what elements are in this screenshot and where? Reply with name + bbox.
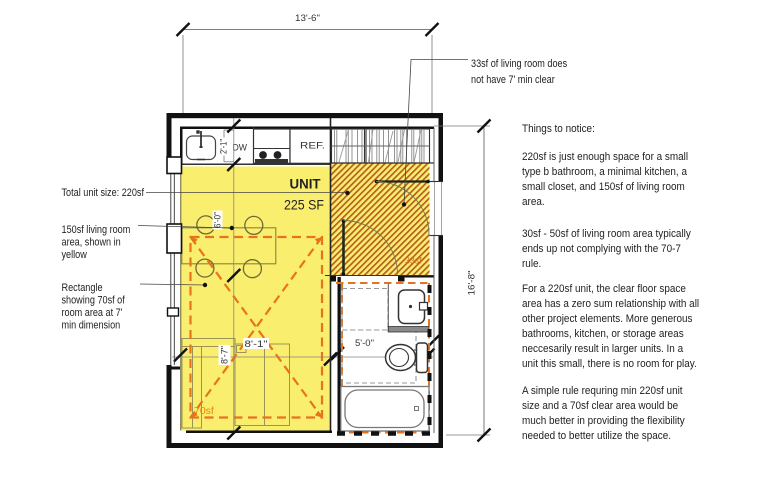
svg-text:area, shown in: area, shown in bbox=[62, 237, 121, 249]
svg-text:much better in providing the f: much better in providing the flexibility bbox=[522, 414, 685, 427]
svg-text:5'-0": 5'-0" bbox=[355, 338, 374, 349]
svg-text:UNIT: UNIT bbox=[290, 177, 322, 192]
svg-text:16'-8": 16'-8" bbox=[467, 271, 478, 296]
svg-text:min dimension: min dimension bbox=[62, 320, 121, 332]
svg-text:small closet, and 150sf of liv: small closet, and 150sf of living room bbox=[522, 180, 685, 193]
svg-text:neccesarily result in larger u: neccesarily result in larger units. In a bbox=[522, 342, 683, 355]
svg-text:DW: DW bbox=[233, 143, 248, 154]
svg-text:Things to notice:: Things to notice: bbox=[522, 122, 595, 135]
svg-text:6'-0": 6'-0" bbox=[213, 212, 224, 228]
svg-text:rule.: rule. bbox=[522, 257, 541, 270]
svg-text:33sf of living room does: 33sf of living room does bbox=[471, 58, 567, 70]
svg-text:Total unit size: 220sf: Total unit size: 220sf bbox=[62, 187, 145, 199]
svg-text:area has a zero sum relationsh: area has a zero sum relationship with al… bbox=[522, 297, 699, 310]
svg-text:type b bathroom, a minimal kit: type b bathroom, a minimal kitchen, a bbox=[522, 165, 687, 178]
svg-text:area.: area. bbox=[522, 195, 545, 208]
svg-text:Rectangle: Rectangle bbox=[62, 282, 103, 294]
svg-text:other project elements. More g: other project elements. More generous bbox=[522, 312, 693, 325]
svg-text:REF.: REF. bbox=[300, 141, 325, 152]
svg-text:A simple rule requring min 220: A simple rule requring min 220sf unit bbox=[522, 384, 683, 397]
svg-text:For a 220sf unit, the clear fl: For a 220sf unit, the clear floor space bbox=[522, 282, 686, 295]
svg-text:size and a 70sf clear area wou: size and a 70sf clear area would be bbox=[522, 399, 678, 412]
svg-text:room area at 7': room area at 7' bbox=[62, 307, 123, 319]
svg-text:ends up not complying with the: ends up not complying with the 70-7 bbox=[522, 242, 681, 255]
svg-text:not have 7' min clear: not have 7' min clear bbox=[471, 74, 555, 86]
svg-text:220sf is just enough space for: 220sf is just enough space for a small bbox=[522, 150, 688, 163]
svg-text:150sf living room: 150sf living room bbox=[62, 224, 131, 236]
svg-text:showing 70sf of: showing 70sf of bbox=[62, 295, 126, 307]
svg-text:225 SF: 225 SF bbox=[284, 198, 324, 213]
svg-text:8'-1": 8'-1" bbox=[245, 339, 268, 350]
svg-text:yellow: yellow bbox=[62, 249, 88, 261]
svg-text:2'-1": 2'-1" bbox=[219, 139, 230, 154]
svg-text:33sf: 33sf bbox=[405, 256, 422, 266]
svg-text:needed to better utilize the s: needed to better utilize the space. bbox=[522, 429, 671, 442]
svg-text:70sf: 70sf bbox=[194, 405, 214, 417]
svg-text:30sf - 50sf of living room are: 30sf - 50sf of living room area typicall… bbox=[522, 227, 691, 240]
svg-text:bathrooms, kitchen, or storage: bathrooms, kitchen, or storage areas bbox=[522, 327, 684, 340]
svg-text:unit this small, there is no r: unit this small, there is no room for pl… bbox=[522, 357, 697, 370]
svg-text:8'-7": 8'-7" bbox=[220, 346, 231, 364]
svg-text:13'-6": 13'-6" bbox=[295, 13, 320, 24]
